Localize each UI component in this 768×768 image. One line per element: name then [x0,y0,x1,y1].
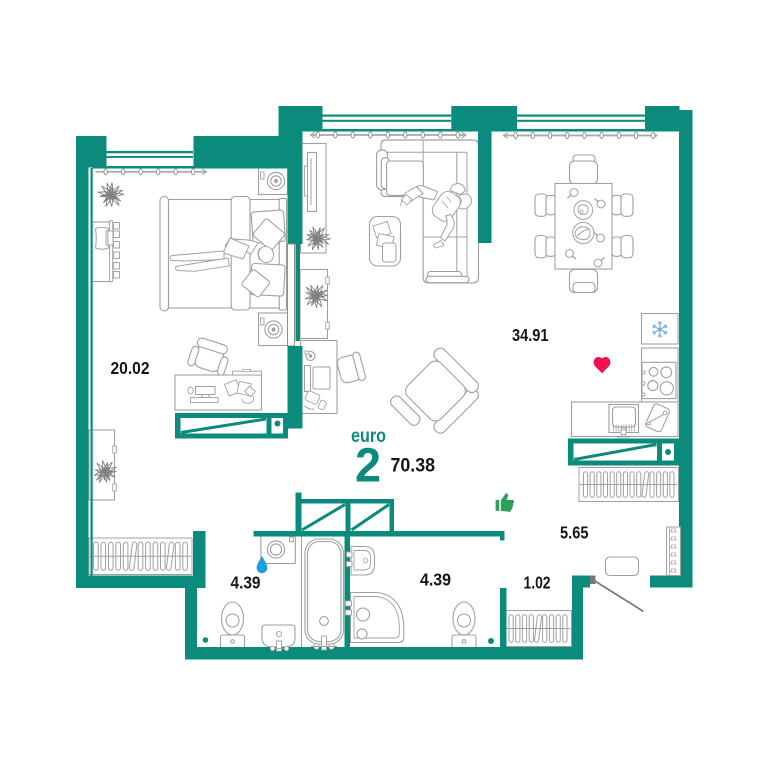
svg-text:4.39: 4.39 [420,570,451,590]
svg-text:70.38: 70.38 [391,456,436,477]
svg-text:1.02: 1.02 [524,573,551,593]
svg-text:4.39: 4.39 [231,573,261,593]
svg-text:5.65: 5.65 [560,523,589,543]
svg-text:2: 2 [355,440,381,493]
svg-text:20.02: 20.02 [111,358,150,378]
svg-text:34.91: 34.91 [512,325,549,345]
